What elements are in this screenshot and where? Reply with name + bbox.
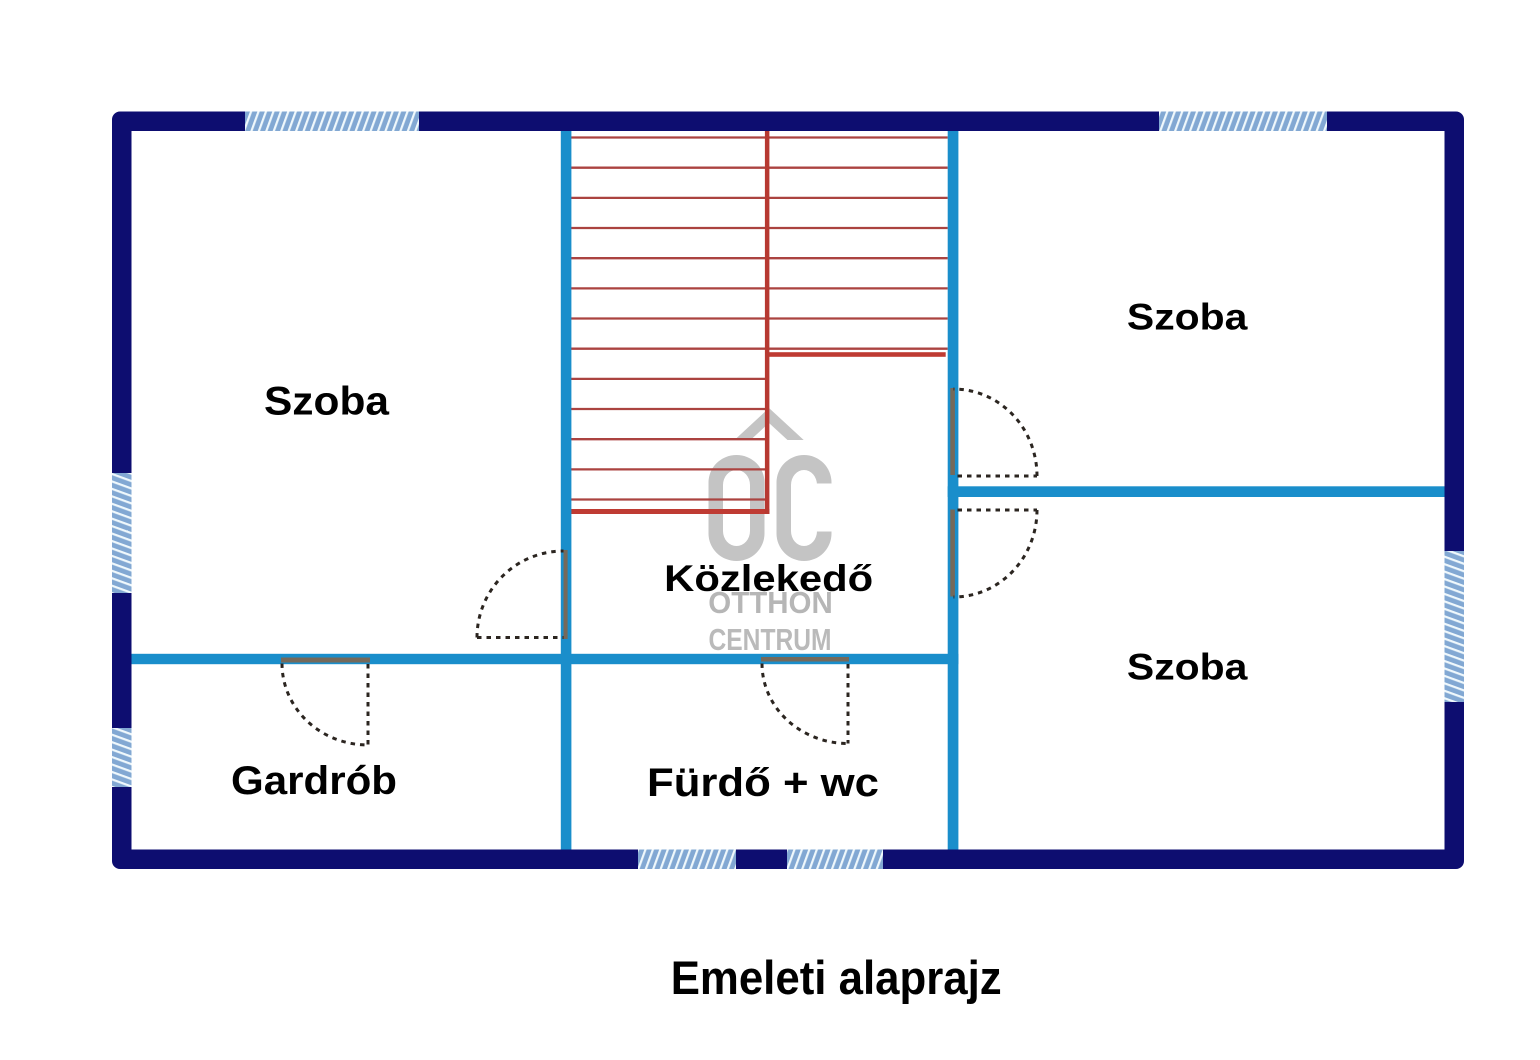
svg-text:Szoba: Szoba (1127, 297, 1248, 338)
svg-text:Fürdő + wc: Fürdő + wc (647, 761, 879, 805)
svg-text:Gardrób: Gardrób (231, 759, 397, 803)
svg-text:Közlekedő: Közlekedő (664, 557, 873, 599)
svg-text:Emeleti alaprajz: Emeleti alaprajz (671, 951, 1002, 1004)
svg-text:Szoba: Szoba (264, 380, 390, 424)
svg-text:CENTRUM: CENTRUM (709, 622, 832, 657)
svg-text:Szoba: Szoba (1127, 647, 1248, 688)
